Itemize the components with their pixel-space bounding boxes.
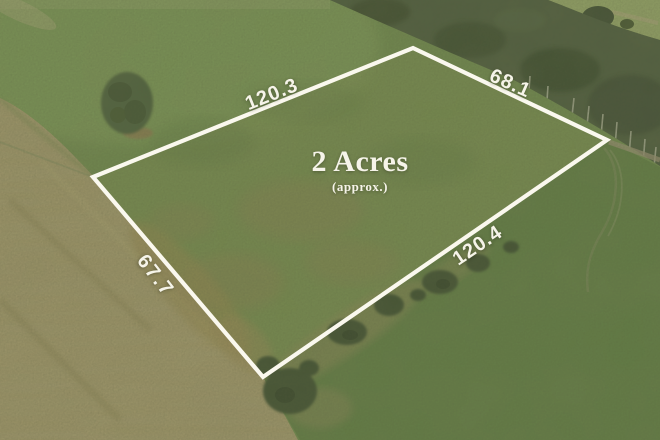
aerial-photo-container: 120.3 68.1 120.4 67.7 2 Acres (approx.) [0, 0, 660, 440]
aerial-photo [0, 0, 660, 440]
photo-grain [0, 0, 660, 440]
area-annotation: 2 Acres (approx.) [311, 147, 408, 193]
area-qualifier: (approx.) [311, 180, 408, 193]
area-label: 2 Acres [311, 147, 408, 177]
